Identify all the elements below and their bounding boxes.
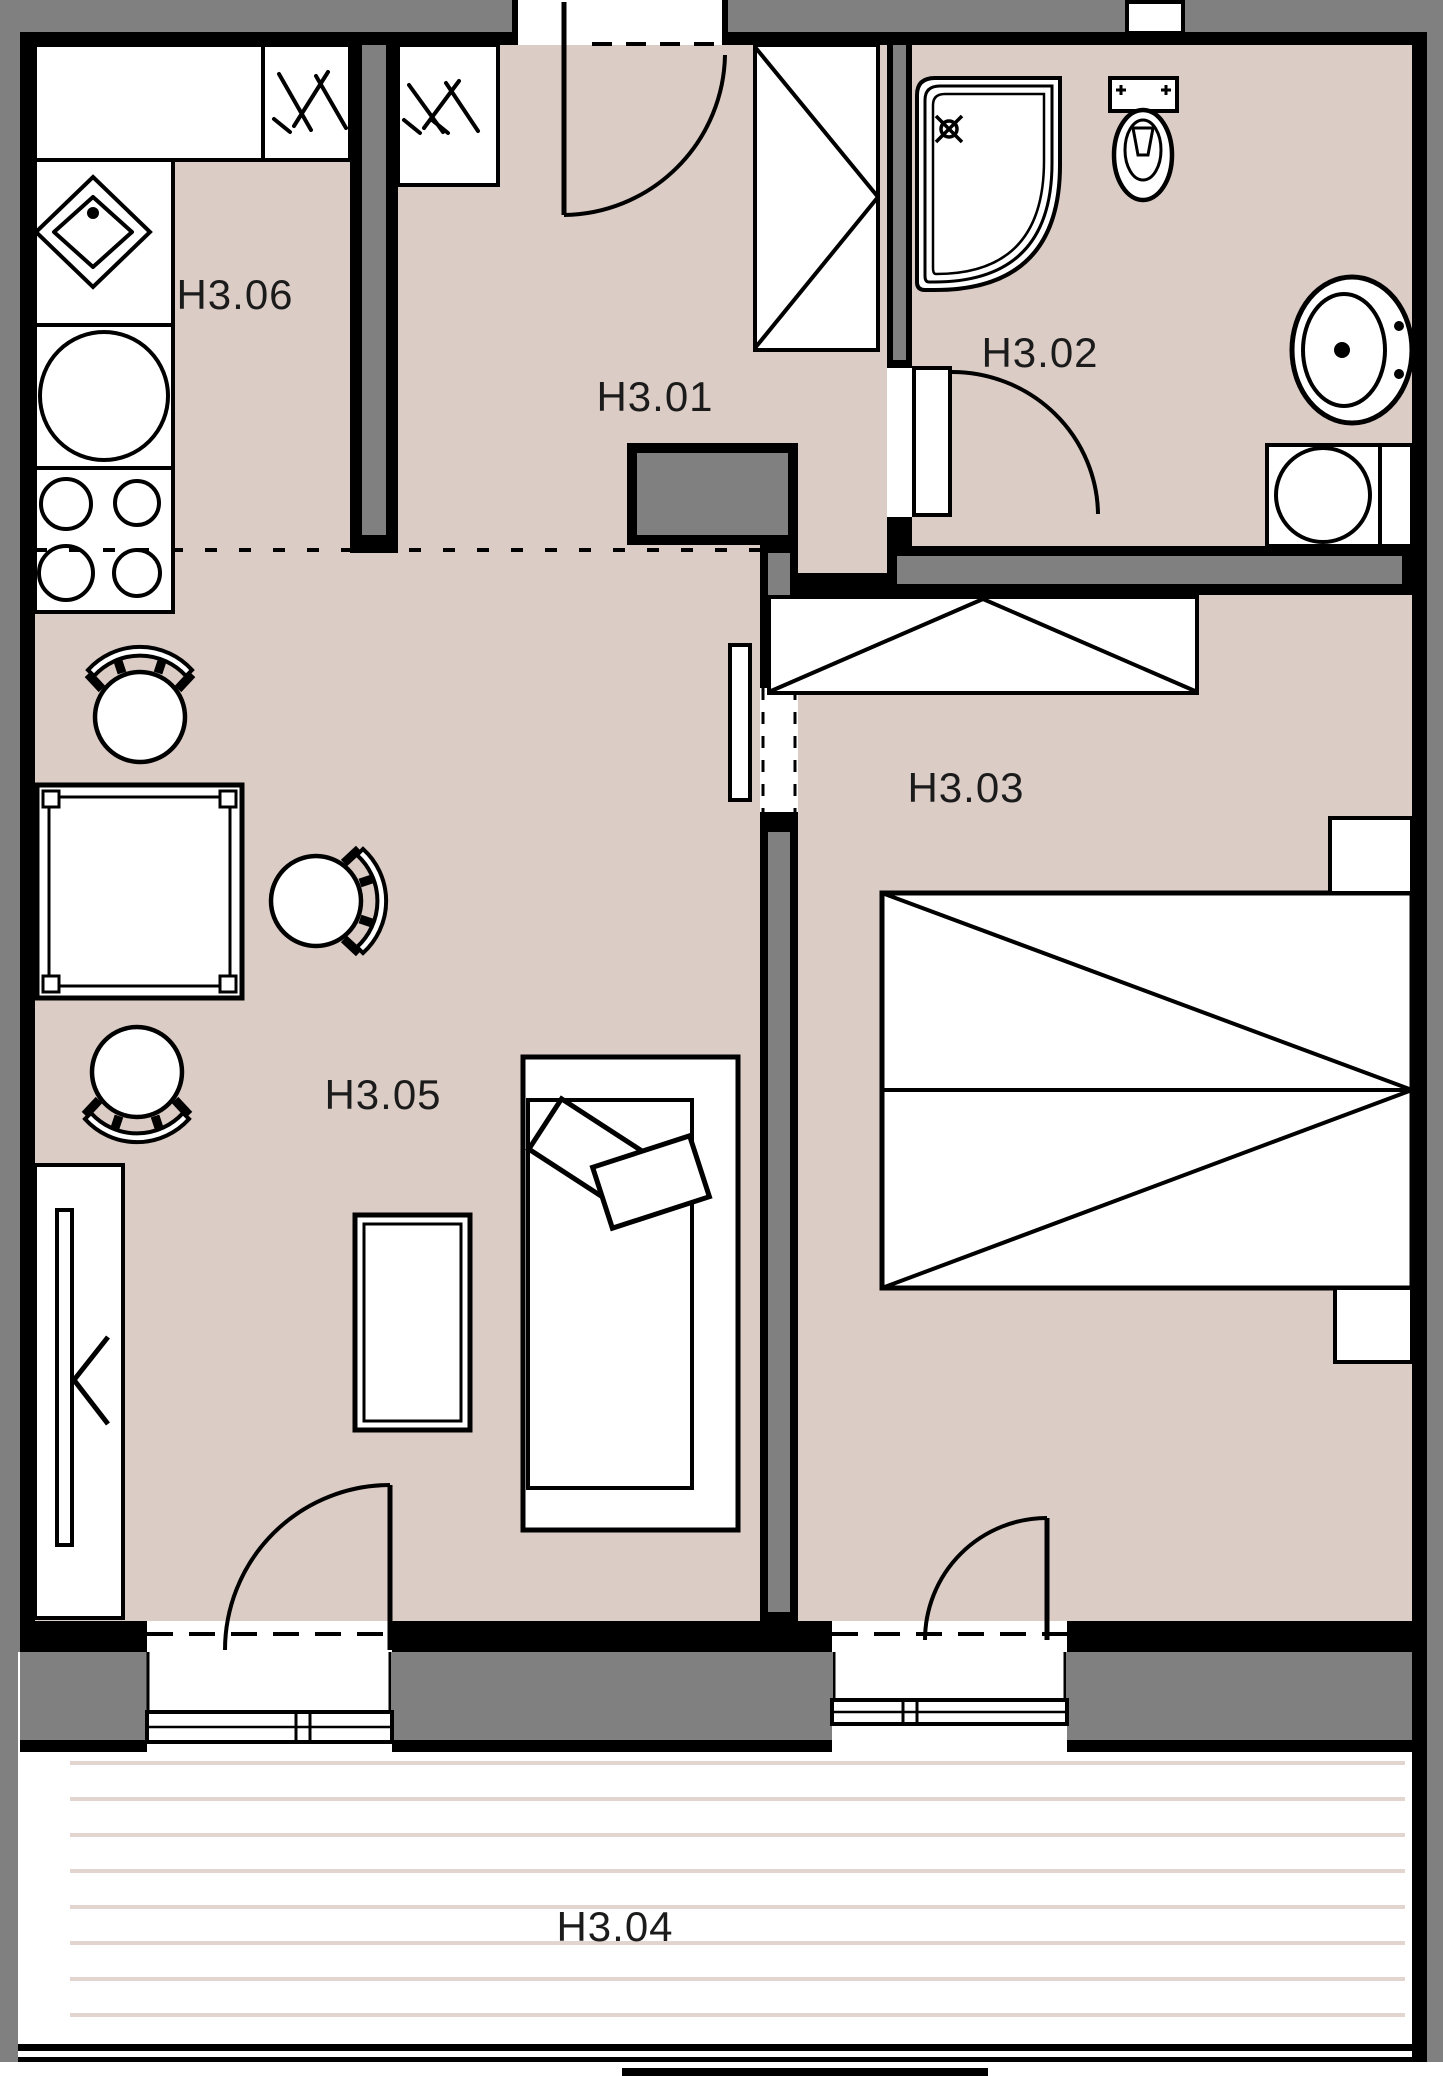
table-leg (220, 791, 236, 807)
nightstand (1335, 1288, 1412, 1362)
wall-block-core (637, 453, 788, 535)
room-label-balcony: H3.04 (556, 1903, 673, 1951)
utility-shaft-hall (398, 45, 498, 185)
bath-counter (1380, 445, 1412, 546)
coffee-table (355, 1215, 470, 1430)
table-leg (220, 976, 236, 992)
floor-plan: H3.01 H3.02 H3.03 H3.04 H3.05 H3.06 (0, 0, 1443, 2076)
table-leg (43, 791, 59, 807)
chair-seat (95, 672, 185, 762)
pier-b-edge (392, 1740, 832, 1752)
pier-b (392, 1652, 832, 1740)
dining-table (37, 785, 242, 998)
wall-balcony-left-gray (0, 1652, 18, 2062)
washbasin-tap-dot (1394, 369, 1404, 379)
room-label-hall: H3.01 (596, 373, 713, 421)
sliding-door-leaf (730, 645, 750, 800)
wall-left-gray (0, 32, 20, 1652)
toilet-flush (1133, 128, 1153, 155)
chair-seat (271, 856, 361, 946)
balcony-railing (18, 2044, 1412, 2051)
washbasin-tap-dot (1394, 321, 1404, 331)
room-label-bathroom: H3.02 (981, 329, 1098, 377)
pier-c-edge (1067, 1740, 1412, 1752)
wall-pocket-lower-core (768, 832, 790, 1612)
entrance-jamb-left (512, 0, 518, 45)
kitchen-counter-top (35, 45, 263, 160)
bedroom-wardrobe (769, 597, 1197, 693)
shower-head-icon (936, 116, 962, 142)
sink-faucet (87, 207, 99, 219)
nightstand (1330, 818, 1412, 893)
balcony-edge-mark (622, 2068, 988, 2076)
wall-bottom-b (392, 1621, 832, 1652)
entrance-jamb-right (722, 0, 728, 45)
pier-a (20, 1652, 147, 1740)
balcony-deck (18, 1763, 1412, 2076)
chair-seat (92, 1027, 182, 1117)
tv-panel (57, 1210, 72, 1545)
wall-top-right-gray (727, 0, 1443, 32)
pocket-door-opening (762, 688, 796, 820)
wall-left (20, 32, 35, 1621)
washing-machine-drum (1276, 448, 1370, 542)
balcony-railing-outer (18, 2057, 1412, 2062)
pier-a-edge (20, 1740, 147, 1752)
wall-top-left-gray (0, 0, 512, 32)
balcony-deck-stripes (70, 1763, 1405, 2015)
room-label-kitchen: H3.06 (176, 271, 293, 319)
top-wall-niche (1127, 2, 1183, 33)
wall-right-gray (1427, 32, 1443, 2062)
room-label-living: H3.05 (324, 1071, 441, 1119)
table-leg (43, 976, 59, 992)
wall-bath-bottom-core (897, 556, 1402, 584)
washbasin-drain (1334, 342, 1350, 358)
entrance-opening (517, 0, 727, 45)
pocket-cap-bottom (760, 812, 798, 821)
wall-bottom-a (20, 1621, 147, 1652)
pier-c (1067, 1652, 1412, 1740)
room-label-bedroom: H3.03 (907, 764, 1024, 812)
tv-sideboard (35, 1165, 123, 1618)
washbasin (1292, 277, 1412, 423)
wall-bottom-c (1067, 1621, 1412, 1652)
wall-hall-bath-lower (887, 517, 912, 546)
wall-kitchen-hall-core (362, 45, 386, 535)
hall-wardrobe (755, 45, 878, 350)
wall-hall-bath-core (893, 45, 906, 360)
bathroom-door-leaf (914, 368, 950, 515)
floor-hall-alcove (798, 443, 887, 595)
